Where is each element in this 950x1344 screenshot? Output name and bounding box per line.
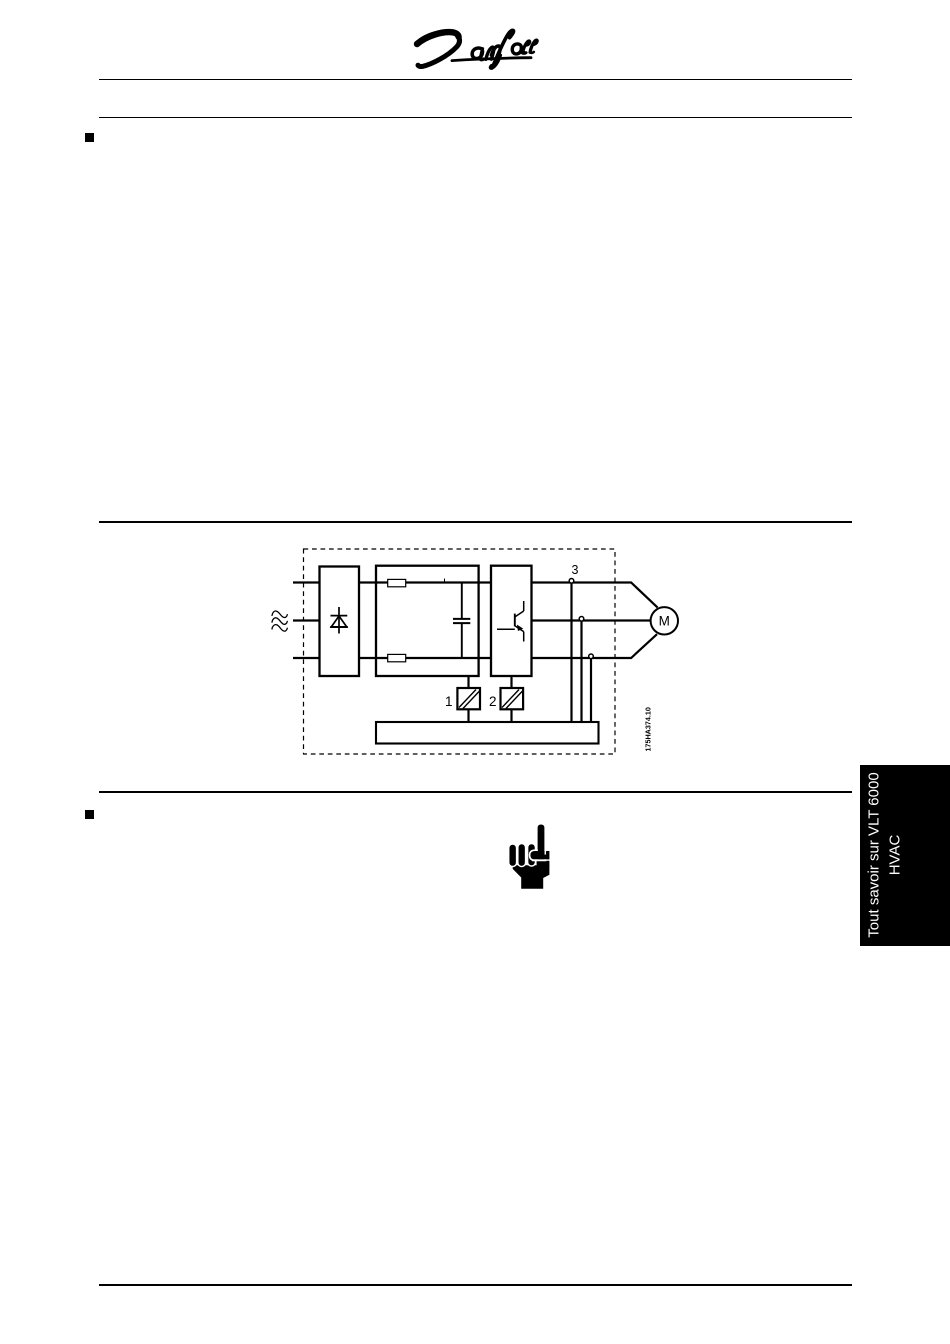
svg-text:2: 2: [489, 694, 497, 709]
svg-text:M: M: [659, 614, 670, 629]
svg-text:175HA374.10: 175HA374.10: [644, 707, 653, 751]
svg-text:3: 3: [572, 563, 579, 577]
svg-text:1: 1: [445, 694, 453, 709]
